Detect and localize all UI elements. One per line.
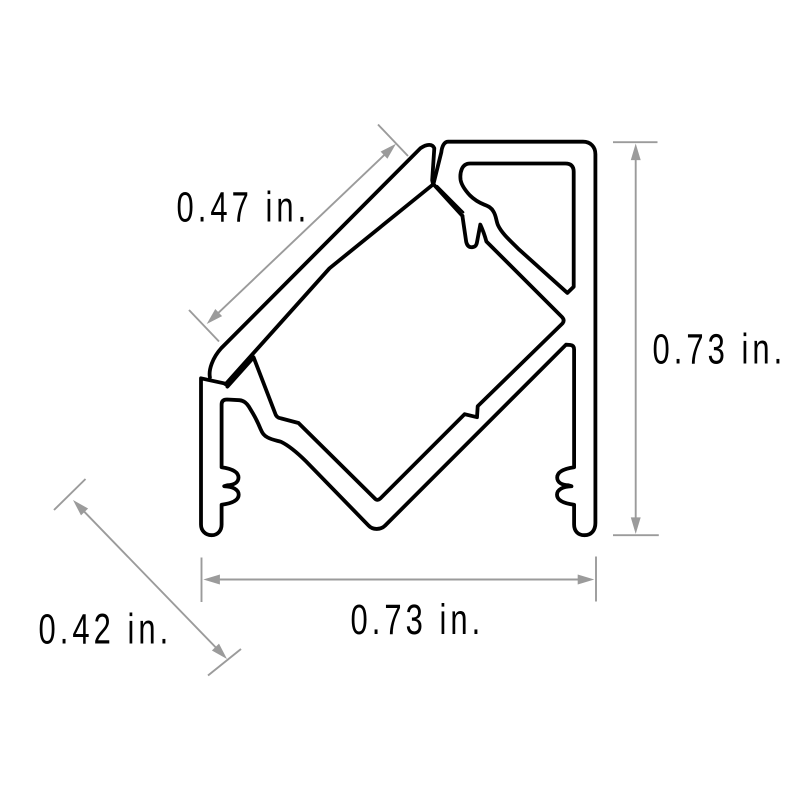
svg-text:0.42 in.: 0.42 in. <box>39 605 173 653</box>
svg-text:0.73 in.: 0.73 in. <box>351 595 485 643</box>
svg-text:0.47 in.: 0.47 in. <box>177 182 311 230</box>
svg-text:0.73 in.: 0.73 in. <box>653 324 787 372</box>
